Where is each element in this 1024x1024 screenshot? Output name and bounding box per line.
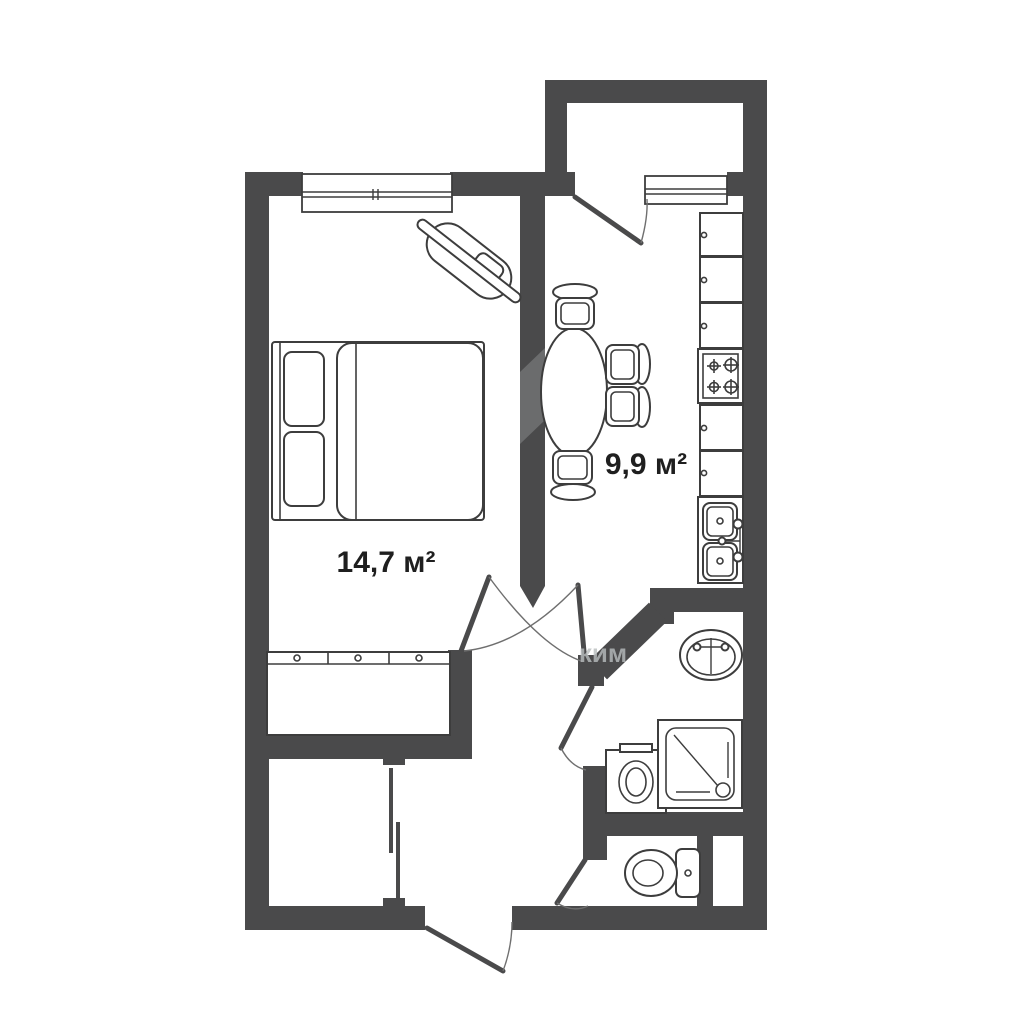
wall-closet-stub-bottom: [383, 898, 405, 930]
wall-closet-stub-top: [383, 735, 405, 765]
bedroom-window: [302, 174, 452, 212]
wall-top-2: [450, 172, 575, 196]
pillow: [284, 432, 324, 506]
wardrobe: [267, 652, 450, 735]
doors: [391, 197, 647, 971]
balcony-window: [645, 176, 727, 204]
kitchen-furniture: [541, 213, 743, 583]
blanket: [337, 343, 483, 520]
pillow: [284, 352, 324, 426]
toilet-tank: [676, 849, 700, 897]
wc-furniture: [625, 849, 700, 897]
wall-bottom-right: [512, 906, 767, 930]
wc-door: [557, 860, 588, 909]
wall-divider-tip: [520, 586, 545, 608]
wall-top-3: [727, 172, 767, 196]
chair-top: [553, 284, 597, 329]
bedroom-furniture: [267, 205, 532, 735]
double-sink: [698, 497, 743, 583]
floor-plan: 14,7 м² 9,9 м² ким: [0, 0, 1024, 1024]
wall-balcony-top: [545, 80, 767, 103]
closet-sliding-door: [391, 768, 398, 898]
chair-bottom: [551, 451, 595, 500]
stove-4-burner: [698, 349, 743, 403]
wall-bedroom-bottom: [245, 735, 472, 759]
bedroom-area-label: 14,7 м²: [337, 546, 436, 579]
bathroom-door: [561, 687, 592, 770]
double-bed: [272, 342, 484, 520]
shower-cabin: [658, 720, 742, 808]
balcony-door: [575, 197, 647, 243]
wall-bedroom-door-jamb: [448, 650, 472, 759]
washbasin: [680, 630, 742, 680]
dining-table: [541, 328, 607, 456]
corner-tv-stand: [406, 205, 533, 317]
floor-plan-page: 14,7 м² 9,9 м² ким: [0, 0, 1024, 1024]
chair-right-1: [606, 344, 650, 384]
tv-screen: [415, 218, 522, 305]
entrance-door: [427, 922, 512, 971]
wall-outer-left: [245, 172, 269, 930]
toilet: [625, 849, 700, 897]
wall-top-1: [245, 172, 303, 196]
wall-bathroom-bottom: [583, 812, 767, 836]
watermark-text: ким: [579, 638, 627, 668]
chair-right-2: [606, 387, 650, 427]
wall-outer-right: [743, 80, 767, 930]
kitchen-area-label: 9,9 м²: [605, 448, 687, 481]
